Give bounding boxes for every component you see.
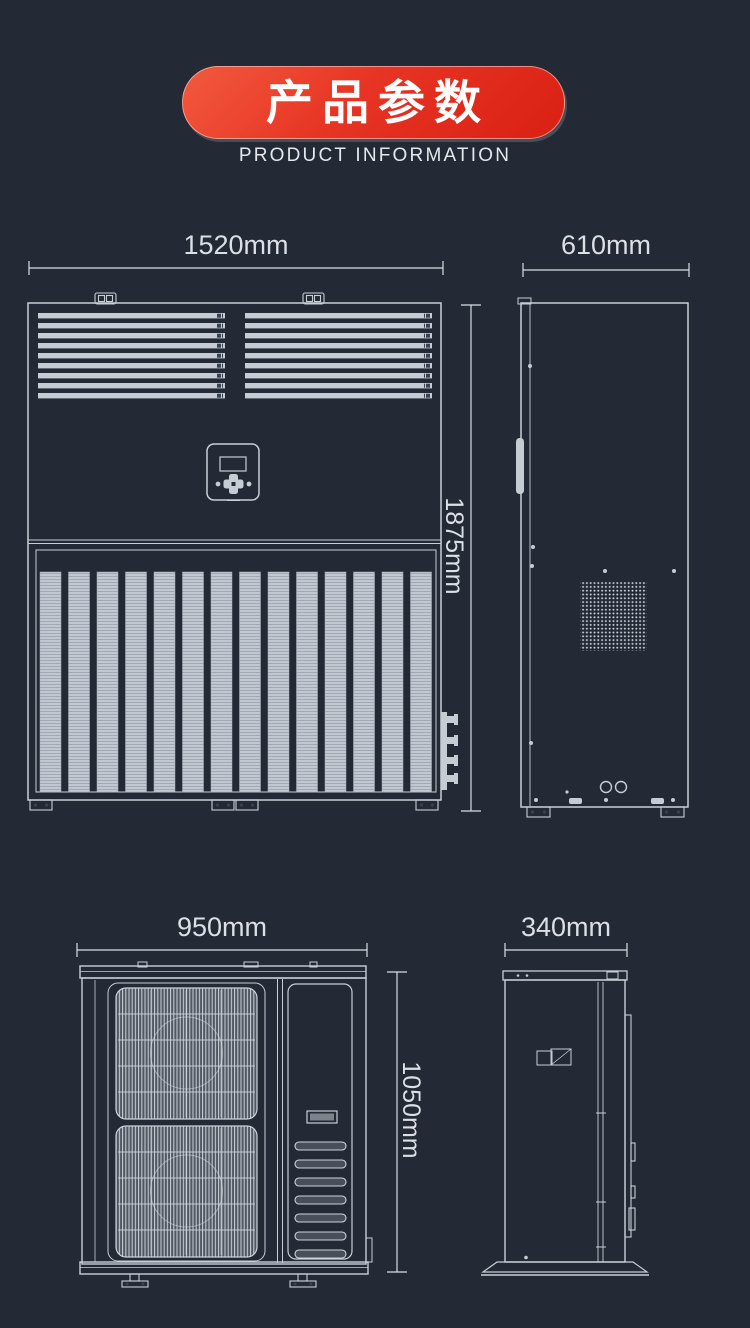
coil-frame	[36, 550, 436, 792]
drain-holes	[601, 782, 627, 793]
side-vent-slots	[295, 1142, 346, 1258]
nameplate	[537, 1049, 571, 1065]
indoor-side-feet	[527, 807, 684, 817]
pipe-connectors	[441, 712, 458, 790]
technical-drawings	[0, 0, 750, 1328]
outdoor-unit-side-drawing	[481, 971, 649, 1275]
perforated-vent	[580, 582, 647, 651]
outdoor-front-feet	[122, 1274, 316, 1287]
louver-panels	[38, 313, 432, 403]
bottom-slots	[569, 798, 664, 804]
control-panel	[207, 444, 259, 501]
side-handle	[516, 438, 524, 494]
base-plate	[481, 1262, 649, 1275]
indoor-unit-side-drawing	[516, 298, 688, 817]
coil-grille	[40, 572, 432, 792]
outdoor-unit-front-drawing	[80, 962, 372, 1287]
indoor-front-feet	[30, 800, 438, 810]
indoor-unit-front-drawing	[28, 293, 458, 810]
pipe-cover-bracket	[625, 1015, 635, 1237]
fan-grilles	[116, 988, 257, 1257]
product-information-page: 产品参数 PRODUCT INFORMATION 1520mm 610mm 18…	[0, 0, 750, 1328]
